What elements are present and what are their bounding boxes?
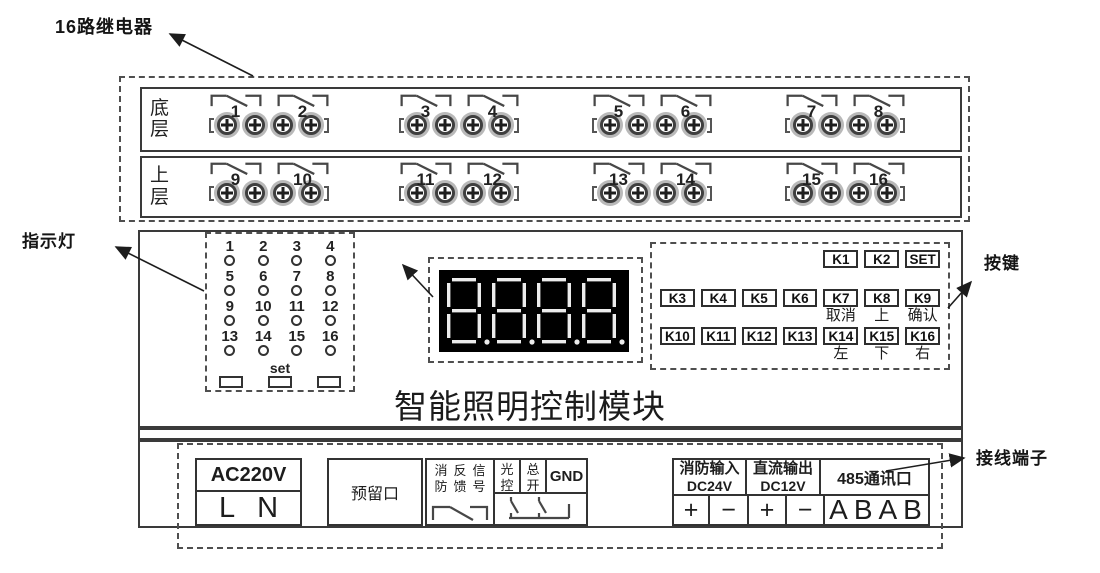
relay-channel-number: 3: [421, 102, 430, 122]
led-indicator: [291, 345, 302, 356]
gnd-label: GND: [547, 460, 586, 492]
key-k9: K9: [905, 289, 940, 307]
led-number: 8: [326, 269, 334, 284]
screw-terminal: [435, 115, 455, 135]
key-k6: K6: [783, 289, 818, 307]
key-k2: K2: [864, 250, 899, 268]
led-indicator: [325, 315, 336, 326]
relay-channel-number: 8: [874, 102, 883, 122]
signal-terminal-group: 消防 反馈 信号 光控 总开 GND: [425, 458, 588, 526]
screw-terminal: [628, 183, 648, 203]
key-k12: K12: [742, 327, 777, 345]
screw-terminal: [245, 115, 265, 135]
led-indicator: [325, 285, 336, 296]
led-indicator: [258, 285, 269, 296]
master-switch-label: 总开: [526, 462, 540, 493]
led-number: 7: [293, 269, 301, 284]
key-caption-cancel: 取消: [823, 308, 858, 323]
indicator-panel: 1 2 3 4 5 6 7 8 9 10 11 12 13 14 15 16 s…: [205, 232, 355, 392]
led-number: 12: [322, 299, 339, 314]
led-indicator: [258, 345, 269, 356]
key-k16: K16: [905, 327, 940, 345]
fire-feedback-cell: 消防 反馈 信号: [427, 460, 495, 524]
dc-output-positive: +: [749, 496, 787, 524]
relay-channel-number: 12: [483, 170, 502, 190]
fire-input-positive: +: [674, 496, 710, 524]
key-caption-down: 下: [864, 346, 899, 361]
key-caption-up: 上: [864, 308, 899, 323]
relay-channel-number: 15: [802, 170, 821, 190]
led-indicator: [224, 345, 235, 356]
led-number: 14: [255, 329, 272, 344]
switch-contacts-icon: [499, 495, 583, 521]
annotation-keypad: 按键: [984, 249, 1020, 274]
annotation-terminals: 接线端子: [976, 444, 1048, 469]
panel-divider-band: [138, 428, 963, 440]
dc-output-header: 直流输出 DC12V: [747, 460, 821, 494]
led-number: 10: [255, 299, 272, 314]
set-label: set: [207, 360, 353, 376]
led-number: 9: [226, 299, 234, 314]
led-indicator: [258, 315, 269, 326]
set-button-window: [268, 376, 292, 388]
ac-power-header: AC220V: [197, 460, 300, 492]
led-number: 15: [288, 329, 305, 344]
terminal-block: 3 4: [392, 92, 526, 135]
fire-input-header: 消防输入 DC24V: [674, 460, 747, 494]
key-k5: K5: [742, 289, 777, 307]
screw-terminal: [273, 183, 293, 203]
fire-input-negative: −: [710, 496, 749, 524]
led-indicator: [291, 315, 302, 326]
key-caption-confirm: 确认: [905, 308, 940, 323]
led-number: 13: [221, 329, 238, 344]
screw-terminal: [628, 115, 648, 135]
terminal-l: L: [219, 494, 235, 523]
relay-channel-number: 1: [231, 102, 240, 122]
key-k11: K11: [701, 327, 736, 345]
screw-terminal: [821, 115, 841, 135]
key-caption-left: 左: [823, 346, 858, 361]
led-number: 4: [326, 239, 334, 254]
key-k7: K7: [823, 289, 858, 307]
panel-window: [317, 376, 341, 388]
key-k4: K4: [701, 289, 736, 307]
led-number: 3: [293, 239, 301, 254]
key-set: SET: [905, 250, 940, 268]
relay-channel-number: 9: [231, 170, 240, 190]
relay-channel-number: 6: [681, 102, 690, 122]
fire-feedback-text: 消防: [434, 463, 448, 494]
key-k15: K15: [864, 327, 899, 345]
led-indicator: [258, 255, 269, 266]
key-k8: K8: [864, 289, 899, 307]
terminal-block: 9 10: [202, 160, 336, 203]
fire-feedback-text: 信号: [472, 463, 486, 494]
relay-channel-number: 14: [676, 170, 695, 190]
led-indicator: [224, 315, 235, 326]
screw-terminal: [656, 115, 676, 135]
led-indicator: [325, 345, 336, 356]
seven-segment-display: [439, 270, 629, 352]
relay-row-bottom: 底层 1 2 3: [140, 87, 962, 152]
key-k1: K1: [823, 250, 858, 268]
panel-window: [219, 376, 243, 388]
led-number: 2: [259, 239, 267, 254]
key-caption-right: 右: [905, 346, 940, 361]
light-control-label: 光控: [500, 462, 514, 493]
relay-row-label: 底层: [150, 98, 172, 142]
led-indicator: [325, 255, 336, 266]
ac-power-terminal: AC220V L N: [195, 458, 302, 526]
terminal-n: N: [257, 494, 278, 523]
led-indicator: [291, 255, 302, 266]
key-k14: K14: [823, 327, 858, 345]
key-k3: K3: [660, 289, 695, 307]
terminal-block: 11 12: [392, 160, 526, 203]
led-indicator: [224, 285, 235, 296]
fire-feedback-text: 反馈: [453, 463, 467, 494]
relay-channel-number: 16: [869, 170, 888, 190]
led-grid: 1 2 3 4 5 6 7 8 9 10 11 12 13 14 15 16: [213, 239, 347, 358]
led-indicator: [224, 255, 235, 266]
screw-terminal: [435, 183, 455, 203]
comm-485-terminals: ABAB: [825, 496, 928, 524]
relay-channel-number: 11: [417, 170, 435, 190]
relay-row-label: 上层: [150, 165, 172, 209]
relay-channel-number: 10: [293, 170, 312, 190]
module-title: 智能照明控制模块: [345, 380, 715, 428]
power-comm-terminal-group: 消防输入 DC24V 直流输出 DC12V 485通讯口 + − + − ABA…: [672, 458, 930, 526]
dc-output-negative: −: [787, 496, 825, 524]
led-number: 5: [226, 269, 234, 284]
terminal-block: 1 2: [202, 92, 336, 135]
screw-terminal: [849, 183, 869, 203]
relay-channel-number: 4: [488, 102, 497, 122]
terminal-block: 15 16: [778, 160, 912, 203]
relay-row-upper: 上层 9 10 11: [140, 156, 962, 218]
led-number: 11: [289, 299, 305, 314]
screw-terminal: [821, 183, 841, 203]
display-frame: [428, 257, 643, 363]
terminal-block: 13 14: [585, 160, 719, 203]
key-k13: K13: [783, 327, 818, 345]
annotation-indicators: 指示灯: [22, 227, 76, 252]
led-indicator: [291, 285, 302, 296]
comm-485-header: 485通讯口: [821, 460, 928, 494]
arrow-relay-bank: [170, 34, 253, 76]
key-k10: K10: [660, 327, 695, 345]
lighting-control-module-diagram: 16路继电器 指示灯 数码管 按键 接线端子 底层 1 2: [0, 0, 1100, 573]
relay-channel-number: 13: [609, 170, 628, 190]
terminal-block: 5 6: [585, 92, 719, 135]
keypad-panel: K1 K2 SET K3 K4 K5 K6 K7 K8 K9 取消 上 确认 K…: [650, 242, 950, 370]
screw-terminal: [245, 183, 265, 203]
relay-channel-number: 2: [298, 102, 307, 122]
screw-terminal: [273, 115, 293, 135]
relay-channel-number: 5: [614, 102, 623, 122]
segment-digits: [439, 270, 629, 352]
screw-terminal: [463, 183, 483, 203]
control-input-cell: 光控 总开 GND: [495, 460, 586, 524]
led-number: 6: [259, 269, 267, 284]
reserved-port-label: 预留口: [329, 460, 421, 524]
screw-terminal: [463, 115, 483, 135]
screw-terminal: [849, 115, 869, 135]
screw-terminal: [656, 183, 676, 203]
reserved-port: 预留口: [327, 458, 423, 526]
relay-contact-icon: [431, 500, 489, 522]
relay-channel-number: 7: [807, 102, 816, 122]
led-number: 16: [322, 329, 339, 344]
terminal-block: 7 8: [778, 92, 912, 135]
led-number: 1: [226, 239, 234, 254]
annotation-relay-bank: 16路继电器: [55, 13, 153, 39]
